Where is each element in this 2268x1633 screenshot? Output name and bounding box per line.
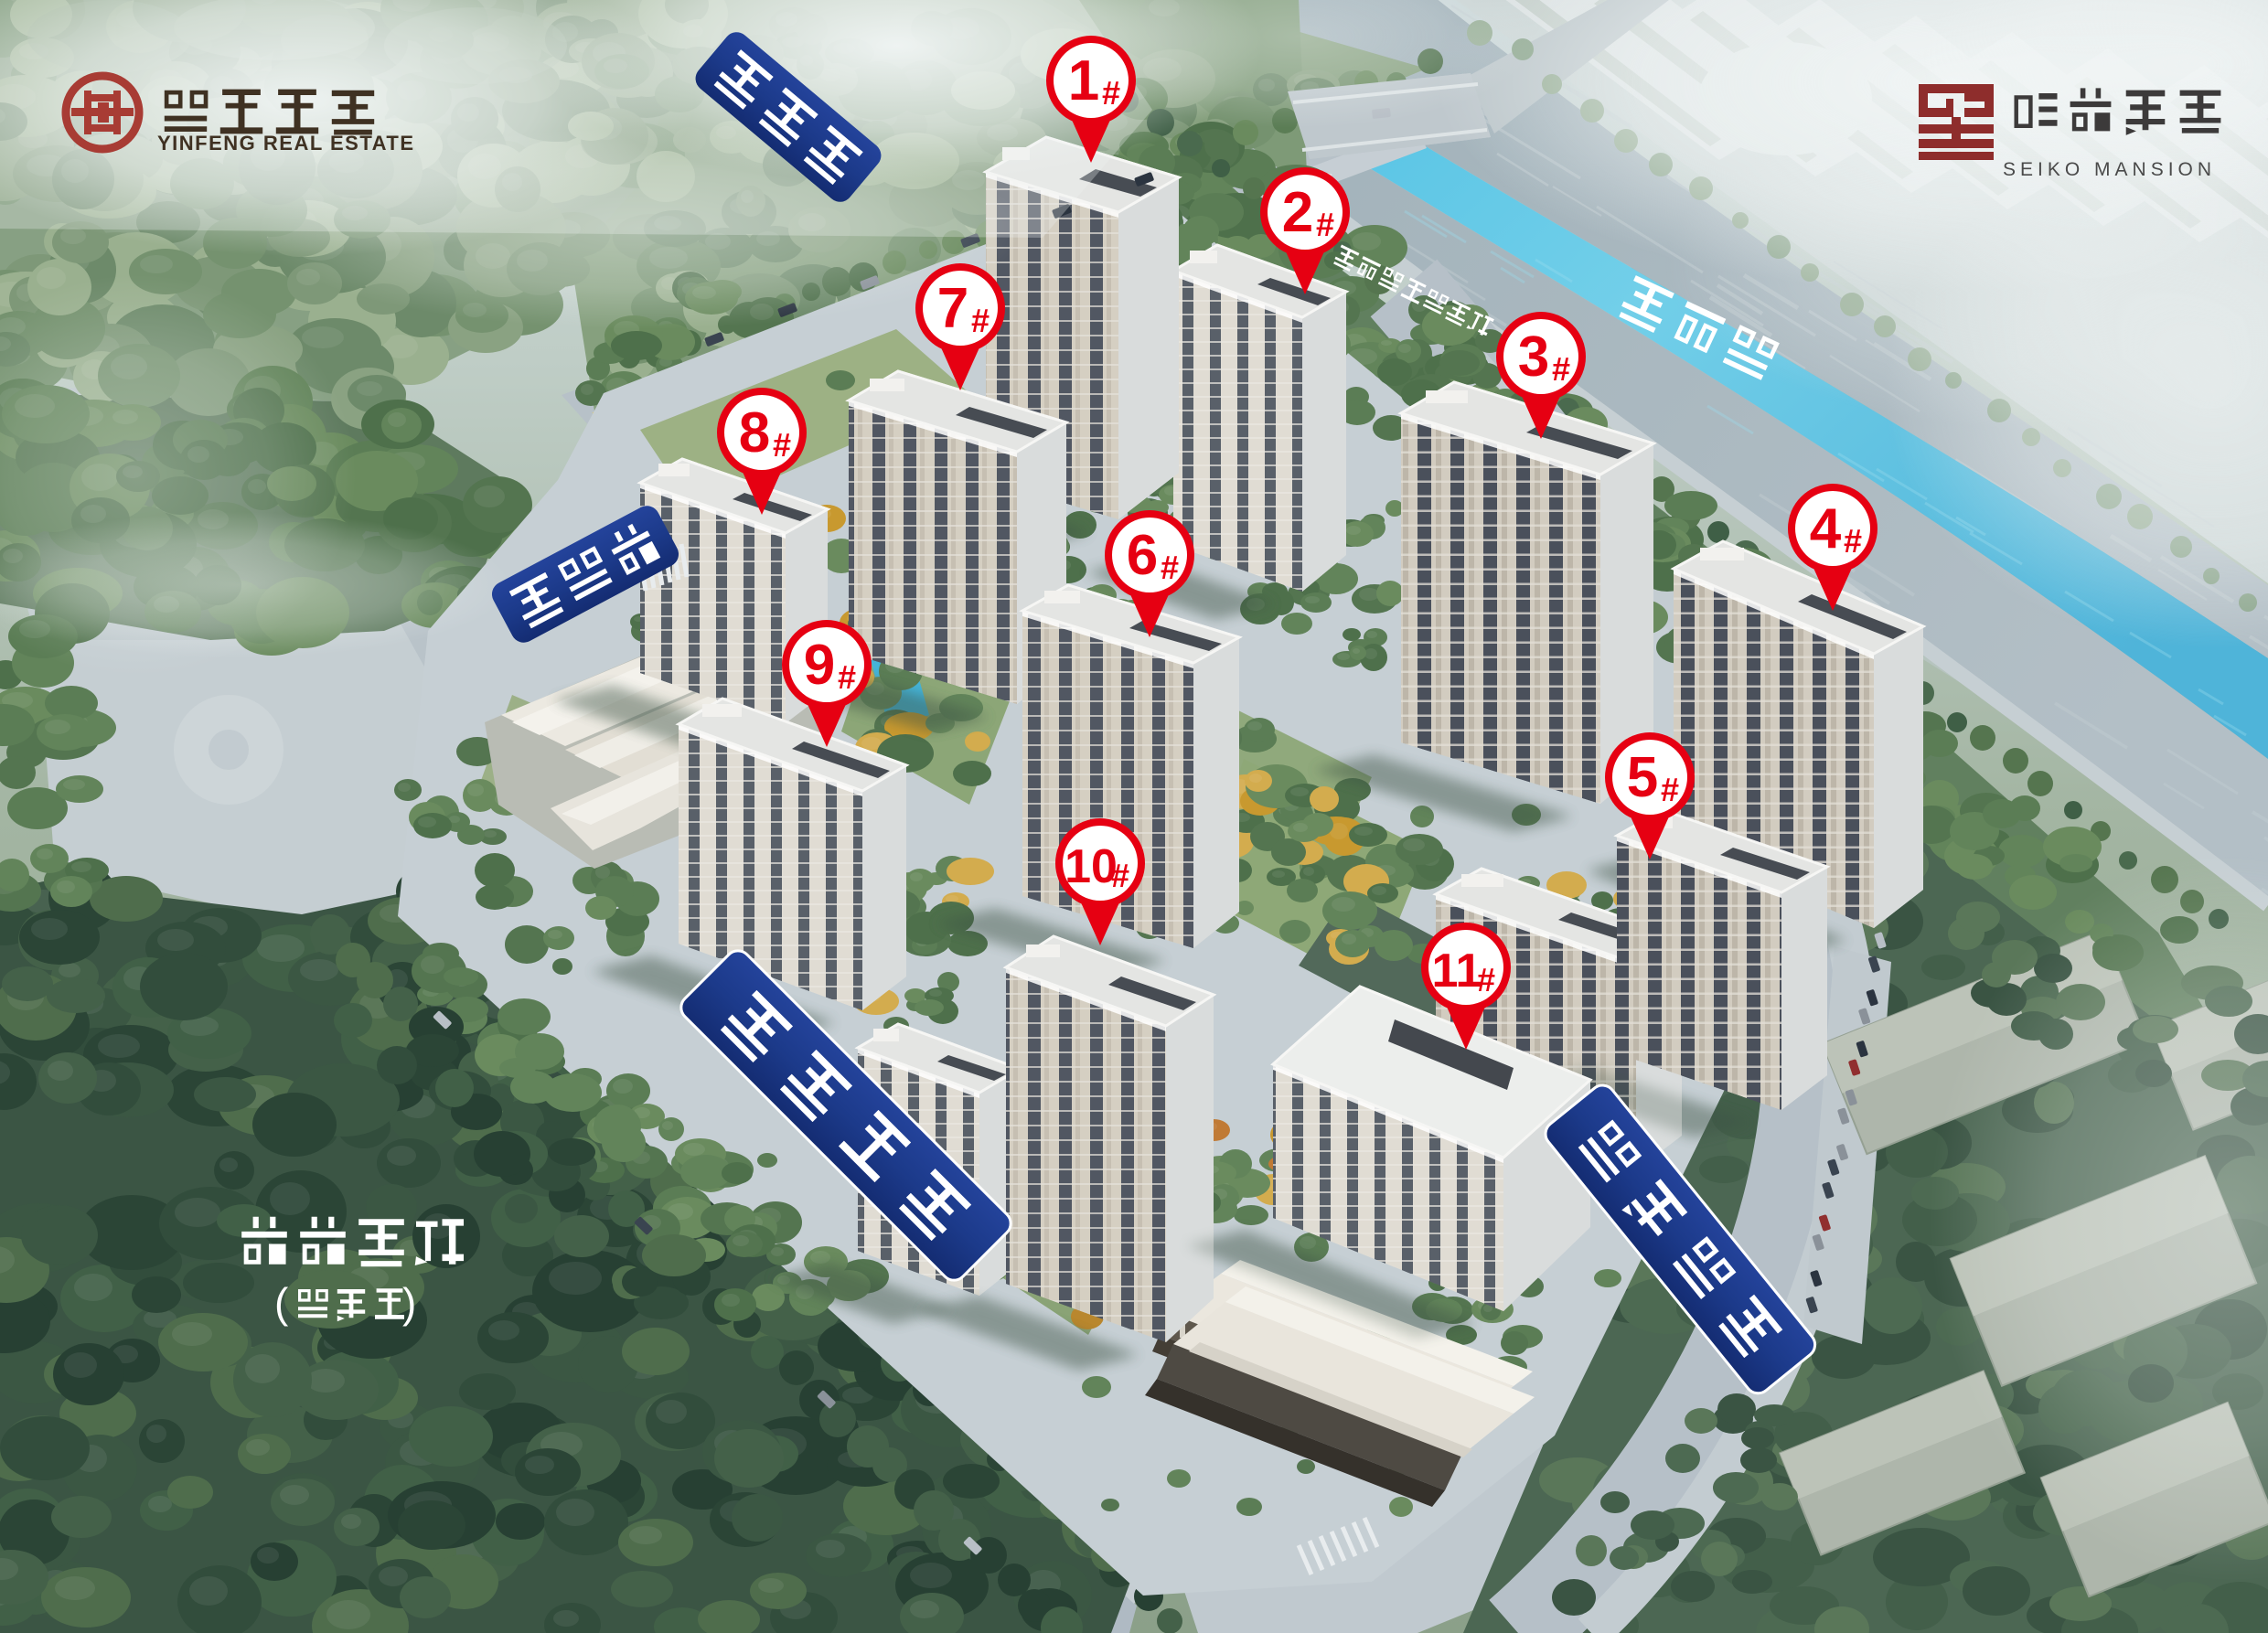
- svg-text:1: 1: [1068, 49, 1099, 112]
- svg-text:4: 4: [1810, 497, 1842, 560]
- svg-text:10: 10: [1064, 840, 1118, 893]
- svg-text:11: 11: [1432, 945, 1482, 998]
- svg-text:(: (: [274, 1279, 289, 1327]
- svg-text:5: 5: [1627, 746, 1658, 809]
- svg-text:9: 9: [804, 634, 835, 697]
- svg-text:YINFENG REAL ESTATE: YINFENG REAL ESTATE: [157, 132, 415, 155]
- svg-text:7: 7: [937, 277, 968, 340]
- svg-text:#: #: [1316, 206, 1334, 243]
- svg-text:2: 2: [1282, 181, 1313, 244]
- svg-text:#: #: [1844, 522, 1862, 560]
- svg-text:3: 3: [1518, 326, 1549, 389]
- svg-text:): ): [402, 1279, 416, 1327]
- svg-text:#: #: [1102, 74, 1120, 112]
- svg-text:8: 8: [739, 401, 770, 464]
- svg-text:SEIKO MANSION: SEIKO MANSION: [2003, 159, 2216, 180]
- svg-text:#: #: [838, 658, 856, 696]
- svg-text:#: #: [1161, 549, 1179, 586]
- svg-text:#: #: [1552, 350, 1570, 388]
- svg-text:#: #: [1477, 961, 1495, 998]
- svg-text:#: #: [773, 426, 791, 464]
- svg-text:#: #: [1111, 857, 1129, 894]
- svg-text:#: #: [1661, 771, 1679, 808]
- svg-text:#: #: [971, 302, 990, 339]
- svg-text:6: 6: [1127, 524, 1158, 587]
